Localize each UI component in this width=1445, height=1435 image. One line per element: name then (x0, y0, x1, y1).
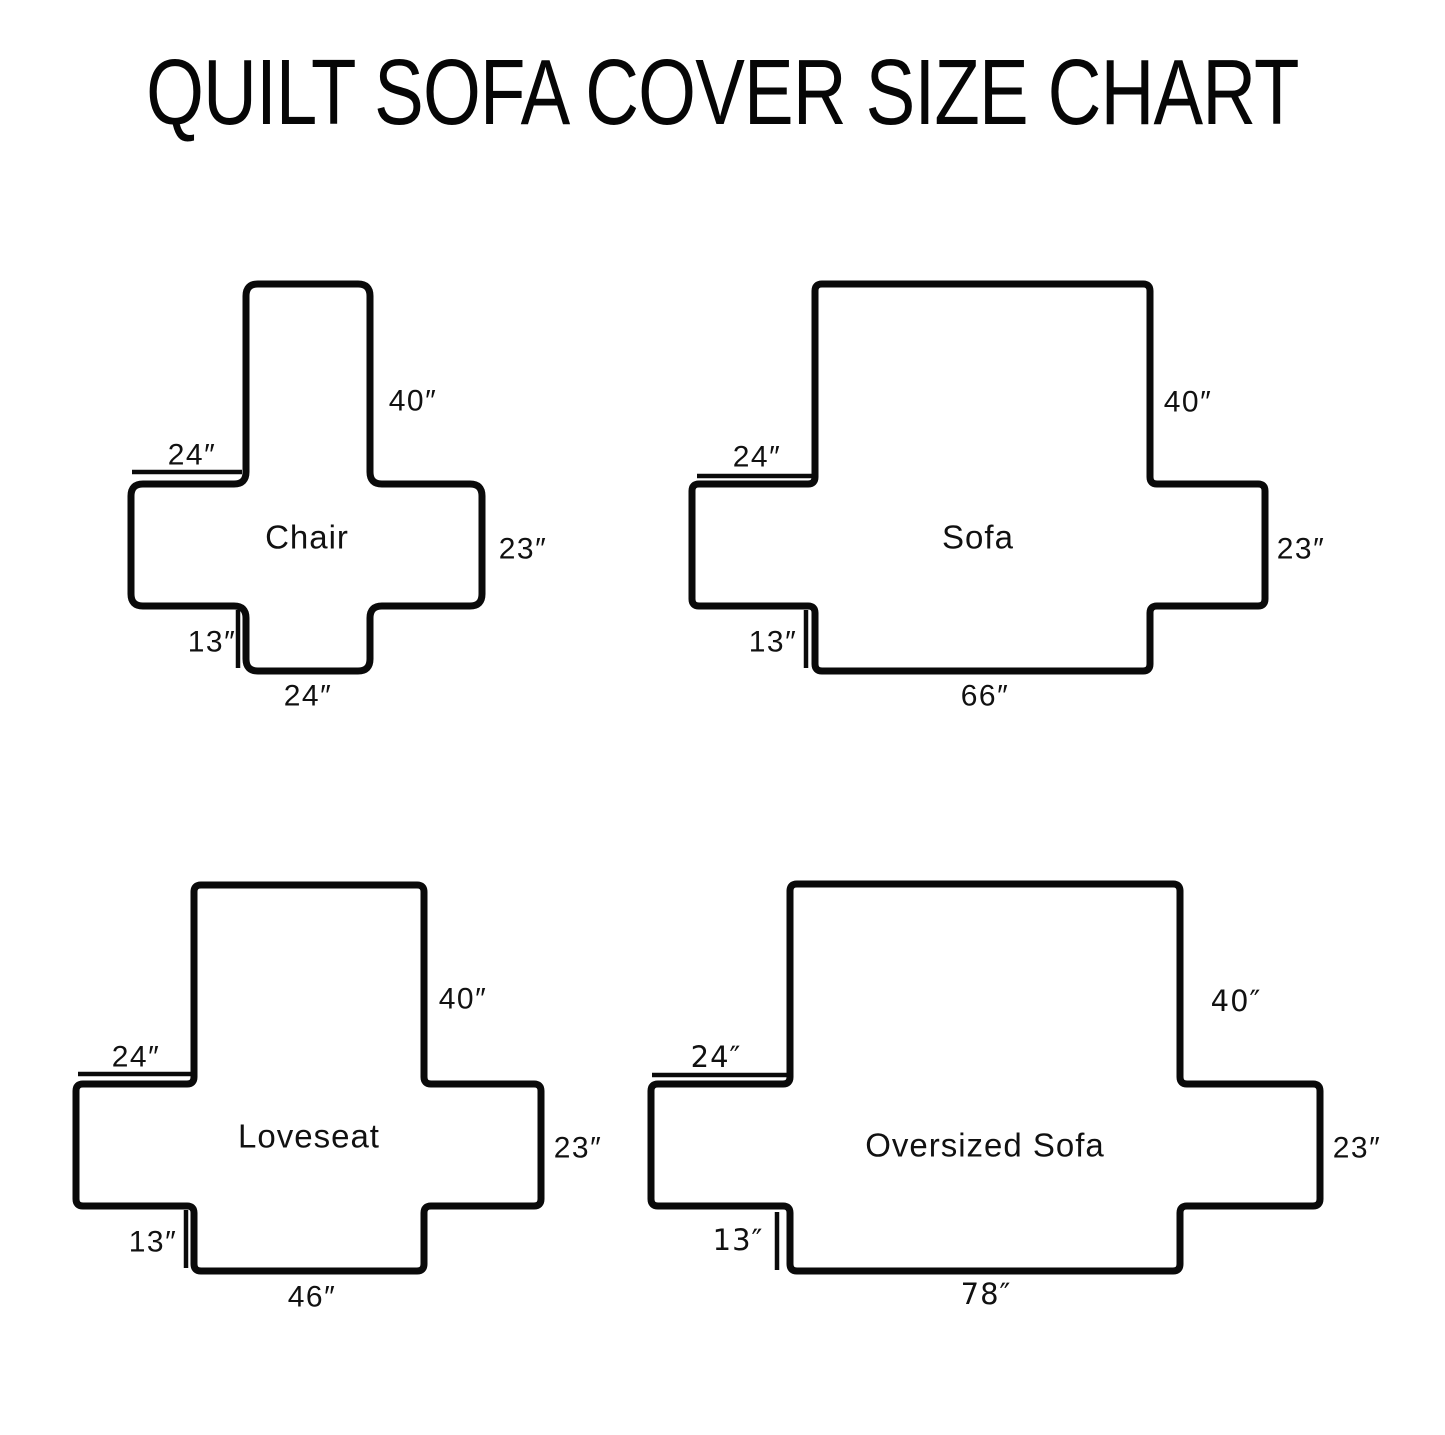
loveseat-side-height-label: 23″ (554, 1132, 603, 1165)
oversized-sofa-name-label: Oversized Sofa (865, 1127, 1105, 1164)
size-chart-svg: 40″24″23″13″24″Chair40″24″23″13″66″Sofa4… (0, 0, 1445, 1435)
loveseat-arm-width-label: 24″ (112, 1041, 161, 1074)
oversized-sofa-skirt-drop-label: 13″ (713, 1223, 764, 1257)
oversized-sofa-back-height-label: 40″ (1211, 984, 1262, 1018)
sofa-arm-width-label: 24″ (733, 441, 782, 474)
oversized-sofa-seat-width-label: 78″ (961, 1277, 1012, 1311)
loveseat-skirt-drop-label: 13″ (129, 1226, 178, 1259)
loveseat-back-height-label: 40″ (439, 983, 488, 1016)
sofa-back-height-label: 40″ (1164, 386, 1213, 419)
oversized-sofa-arm-width-label: 24″ (691, 1040, 742, 1074)
chair-side-height-label: 23″ (499, 533, 548, 566)
oversized-sofa-outline (651, 884, 1320, 1271)
chair-name-label: Chair (265, 519, 349, 556)
diagram-chair: 40″24″23″13″24″Chair (131, 284, 547, 713)
sofa-skirt-drop-label: 13″ (749, 626, 798, 659)
diagram-oversized-sofa: 40″24″23″13″78″Oversized Sofa (651, 884, 1381, 1311)
loveseat-outline (76, 885, 541, 1271)
sofa-seat-width-label: 66″ (961, 680, 1010, 713)
sofa-side-height-label: 23″ (1277, 533, 1326, 566)
loveseat-seat-width-label: 46″ (288, 1281, 337, 1314)
chair-skirt-drop-label: 13″ (188, 626, 237, 659)
chair-arm-width-label: 24″ (168, 439, 217, 472)
diagram-loveseat: 40″24″23″13″46″Loveseat (76, 885, 602, 1314)
size-chart-page: QUILT SOFA COVER SIZE CHART 40″24″23″13″… (0, 0, 1445, 1435)
sofa-name-label: Sofa (942, 519, 1014, 556)
diagram-sofa: 40″24″23″13″66″Sofa (692, 284, 1325, 713)
loveseat-name-label: Loveseat (238, 1118, 380, 1155)
chair-outline (131, 284, 482, 671)
chair-seat-width-label: 24″ (284, 680, 333, 713)
oversized-sofa-side-height-label: 23″ (1333, 1132, 1382, 1165)
chair-back-height-label: 40″ (389, 385, 438, 418)
